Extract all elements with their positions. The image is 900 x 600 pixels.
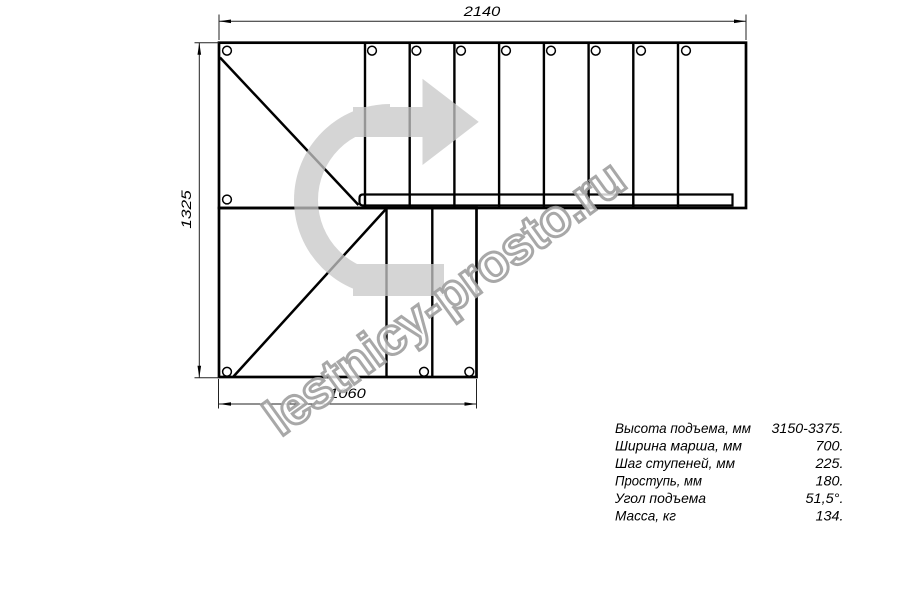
- svg-text:180.: 180.: [816, 473, 844, 489]
- svg-text:Проступь, мм: Проступь, мм: [615, 473, 702, 489]
- svg-text:Угол подъема: Угол подъема: [614, 490, 706, 506]
- svg-text:134.: 134.: [816, 508, 844, 524]
- svg-text:Высота подъема, мм: Высота подъема, мм: [615, 420, 751, 436]
- svg-text:225.: 225.: [814, 455, 843, 471]
- svg-text:2140: 2140: [463, 3, 501, 19]
- svg-text:Шаг ступеней, мм: Шаг ступеней, мм: [615, 455, 735, 471]
- svg-text:1325: 1325: [178, 190, 194, 229]
- svg-text:3150-3375.: 3150-3375.: [772, 420, 844, 436]
- svg-text:Масса, кг: Масса, кг: [615, 508, 676, 524]
- svg-text:51,5°.: 51,5°.: [806, 490, 844, 506]
- svg-text:700.: 700.: [816, 438, 844, 454]
- svg-text:Ширина марша, мм: Ширина марша, мм: [615, 438, 742, 454]
